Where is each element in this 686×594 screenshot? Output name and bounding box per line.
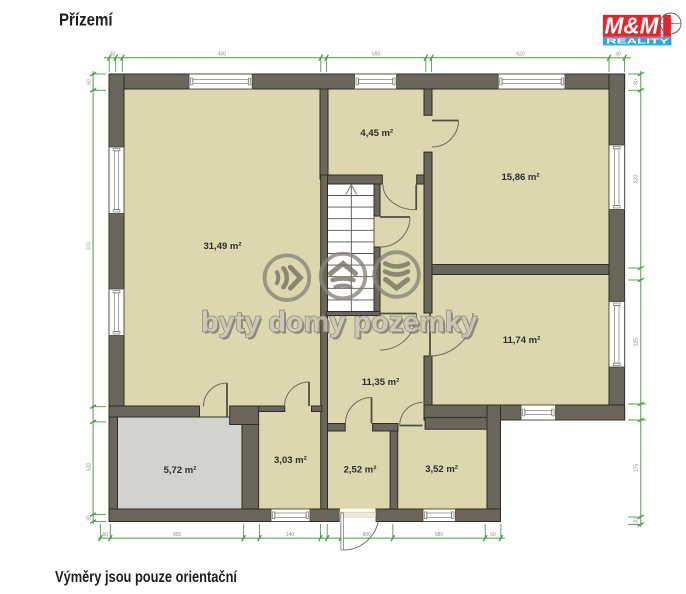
svg-text:175: 175	[634, 464, 640, 473]
svg-text:80: 80	[634, 79, 640, 85]
svg-text:30: 30	[87, 515, 93, 521]
svg-text:400: 400	[218, 52, 227, 58]
svg-text:30: 30	[634, 518, 640, 524]
svg-text:Přízemí: Přízemí	[59, 10, 113, 30]
svg-text:M&M: M&M	[605, 13, 660, 39]
svg-text:900: 900	[363, 532, 372, 538]
svg-text:60: 60	[87, 79, 93, 85]
svg-text:550: 550	[372, 52, 381, 58]
svg-text:140: 140	[286, 532, 295, 538]
svg-text:Výměry jsou pouze orientační: Výměry jsou pouze orientační	[55, 569, 238, 586]
svg-text:60: 60	[103, 532, 109, 538]
svg-text:REALITY: REALITY	[606, 37, 669, 46]
svg-text:2,52 m²: 2,52 m²	[344, 465, 377, 476]
svg-text:905: 905	[173, 532, 182, 538]
svg-text:620: 620	[634, 175, 640, 184]
svg-text:15,86 m²: 15,86 m²	[501, 172, 539, 183]
svg-text:60: 60	[490, 532, 496, 538]
svg-text:225: 225	[634, 338, 640, 347]
svg-text:3,52 m²: 3,52 m²	[425, 464, 458, 475]
svg-text:30: 30	[615, 52, 621, 58]
svg-text:11,74 m²: 11,74 m²	[503, 335, 541, 346]
svg-text:4,45 m²: 4,45 m²	[360, 128, 393, 139]
svg-text:31,49 m²: 31,49 m²	[203, 241, 241, 252]
svg-text:30: 30	[110, 52, 116, 58]
svg-text:5,72 m²: 5,72 m²	[164, 465, 197, 476]
svg-text:370: 370	[87, 242, 93, 251]
svg-text:620: 620	[516, 52, 525, 58]
svg-text:11,35 m²: 11,35 m²	[362, 377, 400, 388]
svg-text:byty domy pozemky: byty domy pozemky	[201, 306, 477, 338]
svg-text:580: 580	[435, 532, 444, 538]
svg-text:3,03 m²: 3,03 m²	[274, 455, 307, 466]
svg-text:520: 520	[87, 463, 93, 472]
